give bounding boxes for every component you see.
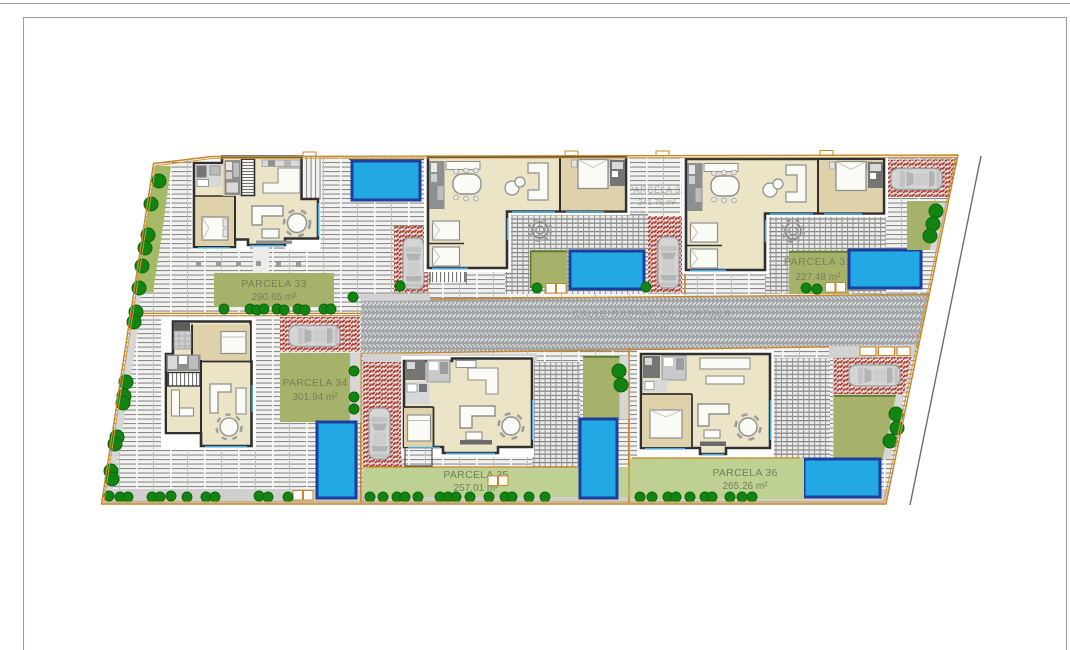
- svg-text:265.26 m²: 265.26 m²: [722, 481, 768, 492]
- svg-text:13.00 m: 13.00 m: [636, 323, 669, 333]
- svg-text:PARCELA 33: PARCELA 33: [241, 278, 306, 290]
- svg-text:PARCELA 32: PARCELA 32: [628, 185, 686, 195]
- svg-text:PARCELA 31: PARCELA 31: [784, 256, 852, 268]
- svg-text:301.94 m²: 301.94 m²: [292, 392, 338, 403]
- svg-text:PARCELA 36: PARCELA 36: [712, 467, 777, 479]
- svg-text:241.75 m²: 241.75 m²: [638, 197, 676, 207]
- svg-text:PARCELA 34: PARCELA 34: [282, 377, 347, 389]
- svg-text:290.65 m²: 290.65 m²: [251, 292, 297, 303]
- svg-text:227.48 m²: 227.48 m²: [795, 272, 841, 283]
- svg-text:CALLE GASPAR DE PORTOLA: CALLE GASPAR DE PORTOLA: [573, 309, 731, 320]
